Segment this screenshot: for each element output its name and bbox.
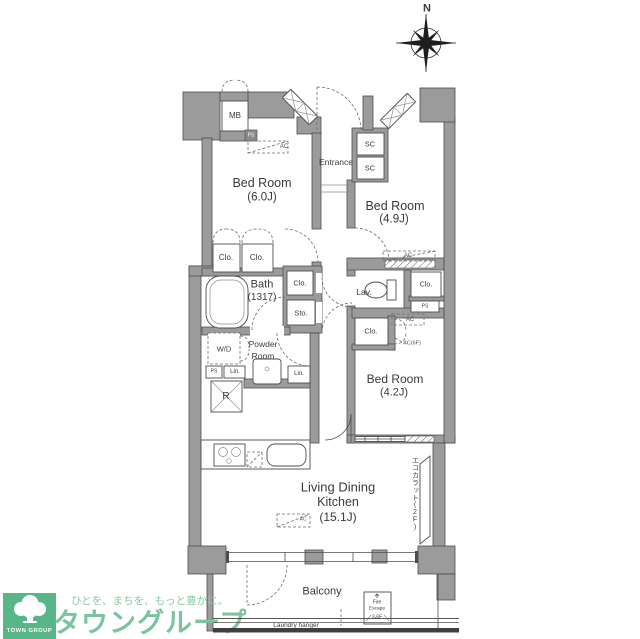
fire-escape-label-1: Fire — [373, 601, 382, 606]
bath-name-label: Bath — [251, 280, 274, 291]
bath-size-label: (1317) — [248, 293, 277, 303]
closet-label-2: Clo. — [250, 254, 264, 262]
linen-label-1: Lin. — [230, 369, 240, 375]
logo-group-en-label: TOWN GROUP — [7, 629, 52, 635]
linen-label-2: Lin. — [294, 371, 304, 377]
pipe-space-label-1: PS — [248, 133, 255, 138]
ecocarat-panel — [420, 456, 430, 544]
ac-label-3: AC — [406, 317, 414, 323]
ldk-name-label-1: Living Dining — [301, 481, 375, 494]
kitchen-counter — [201, 440, 310, 469]
ldk-name-label-2: Kitchen — [317, 496, 359, 509]
fire-escape-label-3: 3-6F — [372, 615, 382, 620]
entrance-label: Entrance — [319, 158, 353, 167]
meter-box-label: MB — [229, 112, 241, 120]
ecocarat-label: エコカラット(2F) — [412, 457, 419, 532]
bedroom2-size-label: (4.9J) — [379, 214, 408, 226]
shoe-cabinet-label-1: SC — [365, 140, 375, 148]
closet-label-1: Clo. — [219, 254, 233, 262]
lavatory-label: Lav. — [356, 288, 371, 297]
shoe-cabinet-label-2: SC — [365, 164, 375, 172]
ac-6f-label: AC(6F) — [403, 341, 421, 347]
floorplan-drawing: ひとを、まちを、もっと豊かに。 タウングループ — [0, 0, 640, 639]
ldk-size-label: (15.1J) — [319, 511, 356, 523]
bathtub-icon — [206, 276, 248, 328]
sliding-door — [355, 437, 405, 442]
bedroom2-name-label: Bed Room — [365, 200, 424, 213]
sink-icon — [267, 444, 306, 466]
fire-escape-label-2: Escape — [369, 607, 385, 612]
pipe-space-label-3: PS — [211, 370, 218, 375]
compass-north-label: N — [423, 4, 431, 15]
bedroom3-size-label: (4.2J) — [380, 388, 408, 399]
closet-label-4: Clo. — [420, 282, 432, 289]
floorplan-page: ひとを、まちを、もっと豊かに。 タウングループ N MB PS AC Bed R… — [0, 0, 640, 639]
bedroom1-name-label: Bed Room — [232, 177, 291, 190]
diagonal-window-2 — [380, 93, 415, 128]
powder-room-label-2: Room — [252, 352, 275, 361]
closet-label-5: Clo. — [364, 327, 377, 335]
refrigerator-label: R — [222, 392, 229, 402]
ac-label-ldk: AC — [300, 518, 307, 523]
stove-icon — [214, 444, 245, 466]
laundry-hanger-label: Laundry hanger — [273, 623, 319, 630]
bedroom1-size-label: (6.0J) — [247, 192, 276, 204]
washer-dryer-label: W/D — [217, 345, 232, 353]
compass-icon — [396, 14, 456, 72]
powder-room-label-1: Powder — [249, 340, 278, 349]
pipe-space-label-2: PS — [422, 304, 429, 309]
ac-label-1: AC — [280, 144, 288, 150]
balcony-railing — [213, 619, 459, 633]
logo-tagline: ひとを、まちを、もっと豊かに。 — [71, 594, 228, 607]
ac-label-2: AC — [404, 253, 412, 259]
closet-label-3: Clo. — [293, 279, 306, 287]
storage-label: Sto. — [294, 309, 307, 317]
balcony-label: Balcony — [302, 587, 341, 598]
washbasin-icon — [253, 359, 281, 384]
bedroom3-name-label: Bed Room — [367, 373, 424, 385]
